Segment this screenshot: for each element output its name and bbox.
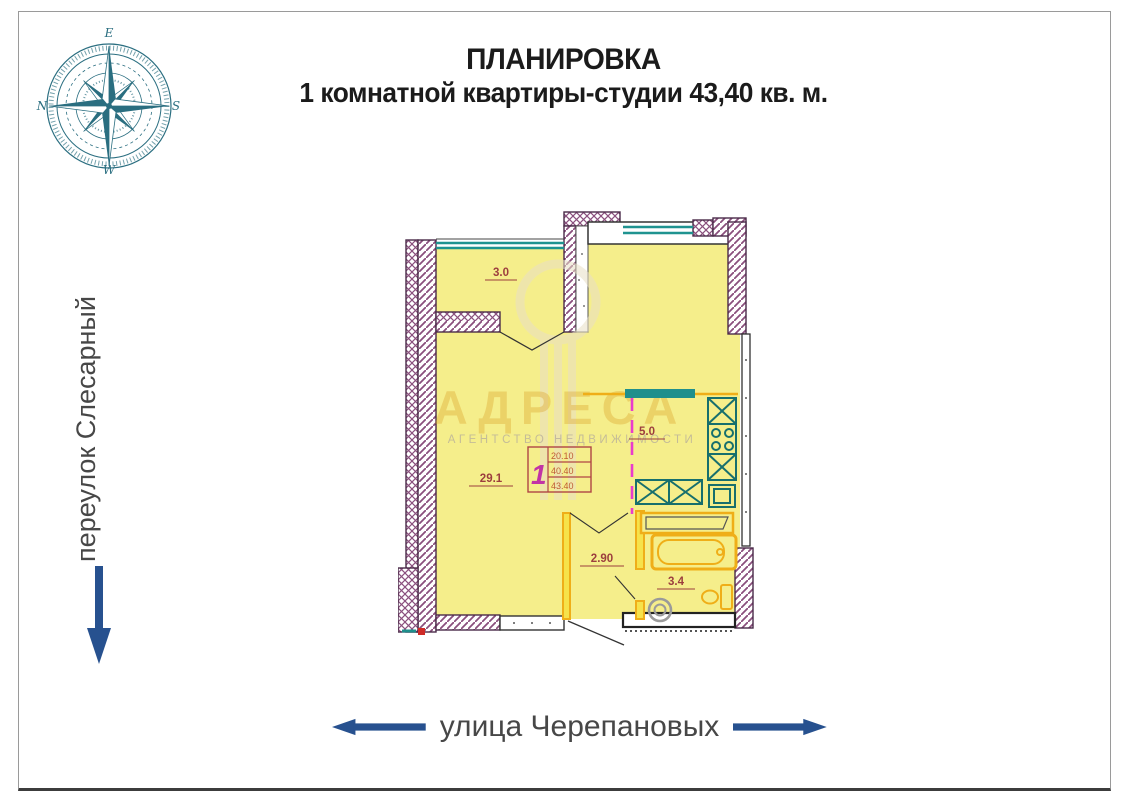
stamp-total-area: 43.40	[551, 481, 574, 491]
area-label-loggia: 3.0	[493, 267, 509, 279]
kitchen-counter-bar	[625, 389, 695, 398]
street-label-bottom: улица Черепановых	[440, 710, 720, 744]
page-title: ПЛАНИРОВКА 1 комнатной квартиры-студии 4…	[20, 44, 1107, 109]
compass-letter-top: E	[104, 26, 114, 40]
area-label-kitchen: 5.0	[639, 426, 655, 438]
bathroom-shelf-icon	[641, 513, 733, 533]
street-label-left: переулок Слесарный	[71, 289, 105, 569]
east-arrow-icon	[733, 718, 827, 736]
bathtub-icon	[652, 535, 736, 569]
area-label-hallway: 2.90	[591, 553, 613, 565]
floorplan-page: E S W N ПЛАНИРОВКА 1 комнатной квартиры-…	[0, 0, 1127, 800]
area-label-living-room: 29.1	[480, 473, 503, 485]
west-arrow-icon	[332, 718, 426, 736]
south-arrow-icon	[86, 566, 112, 666]
stamp-rooms-count: 1	[531, 459, 547, 490]
title-line-2: 1 комнатной квартиры-студии 43,40 кв. м.	[53, 76, 1075, 110]
title-line-1: ПЛАНИРОВКА	[53, 44, 1075, 76]
street-row-bottom: улица Черепановых	[332, 710, 827, 744]
area-label-bathroom: 3.4	[668, 576, 685, 588]
stamp-living-area: 20.10	[551, 451, 574, 461]
floorplan-drawing: АДРЕСА АГЕНТСТВО НЕДВИЖИМОСТИ	[398, 202, 760, 654]
watermark-subtitle: АГЕНТСТВО НЕДВИЖИМОСТИ	[448, 434, 697, 446]
stamp-auxiliary-area: 40.40	[551, 466, 574, 476]
compass-letter-bottom: W	[103, 163, 117, 176]
window-loggia	[436, 239, 564, 248]
